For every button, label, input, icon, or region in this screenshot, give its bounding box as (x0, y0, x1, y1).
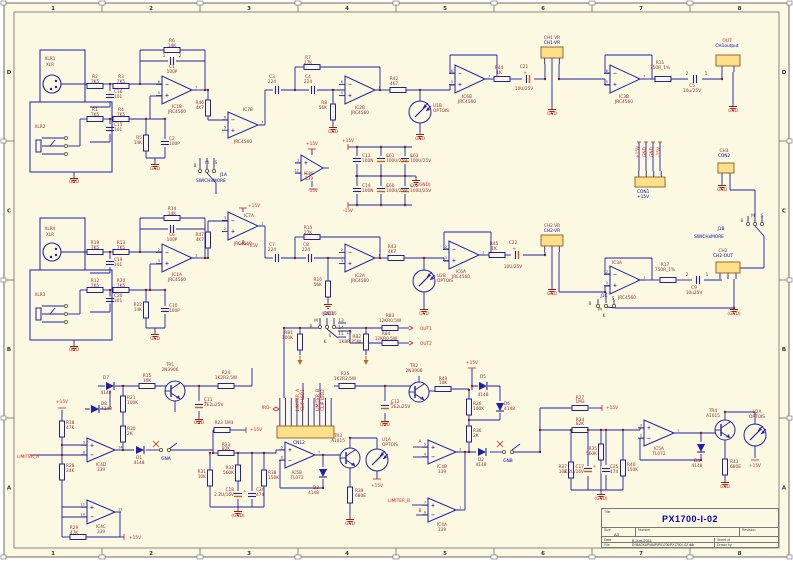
schematic-label: XLR4 (44, 226, 55, 232)
resistor-R38 (261, 470, 267, 486)
mask (376, 157, 386, 164)
frame-col-label: 1 (51, 551, 55, 557)
schematic-label: SWICHxMORE (196, 178, 226, 184)
size-number-revision-row: Size A3 Number Revision (602, 528, 778, 537)
schematic-label: -15V (656, 147, 662, 157)
schematic-label: 100N (362, 188, 373, 194)
switch-contact (502, 450, 505, 453)
pin-number: 3 (606, 281, 608, 285)
schematic-label: M (314, 318, 318, 324)
size-cell: Size A3 (602, 528, 636, 536)
edge-square (99, 555, 105, 559)
pin-number: 1 (195, 254, 197, 258)
pin-number: 1 (459, 506, 461, 510)
junction-dot (263, 452, 265, 454)
schematic-label: CLIP LED2 (320, 389, 326, 411)
schematic-label: 224 (268, 79, 276, 85)
optocoupler-U2B (413, 270, 435, 292)
switch-contact (318, 325, 321, 328)
schematic-label: 24K (66, 468, 74, 474)
schematic-label: A1015 (706, 413, 720, 419)
schematic-label: (GND) (417, 182, 431, 188)
input-sign: − (90, 452, 94, 458)
pin-number: 2 (445, 245, 447, 249)
resistor-R82 (363, 334, 369, 350)
xlr-pin (50, 256, 52, 258)
pin-number: 11 (80, 503, 85, 507)
capacitor-C7 (274, 253, 281, 263)
diode-D1 (135, 445, 145, 455)
schematic-label: OUT1 (420, 326, 432, 332)
pin-number: 1 (482, 251, 484, 255)
junction-dot (145, 118, 147, 120)
junction-dot (237, 452, 239, 454)
schematic-label: JRC4560 (614, 99, 633, 105)
schematic-label: GND (69, 179, 80, 185)
schematic-label: XLR1 (44, 56, 55, 62)
schematic-label: JRC4560 (617, 295, 636, 301)
junction-dot (356, 175, 358, 177)
schematic-label: 750R_1% (650, 65, 670, 71)
schematic-label: JRC4560 (350, 278, 369, 284)
schematic-label: XLR2 (34, 124, 45, 130)
capacitor-C5 (692, 74, 699, 84)
schematic-label: A1015 (331, 438, 345, 444)
schematic-label: 101 (114, 298, 122, 304)
connector-body (541, 235, 563, 246)
pin-number: 12 (294, 169, 299, 173)
junction-dot (600, 429, 602, 431)
pin-number: 13 (118, 508, 123, 512)
schematic-label: CLIP LED1 (300, 389, 306, 411)
resistor-R18 (59, 421, 65, 437)
edge-square (1, 416, 6, 420)
schematic-label: 13 (338, 318, 344, 324)
schematic-label: 339 (97, 529, 105, 535)
schematic-label: C22 (509, 240, 518, 246)
resistor-R25 (339, 383, 355, 389)
schematic-label: JRC4560 (457, 99, 476, 105)
schematic-label: 12 (346, 330, 352, 336)
switch-contact (604, 304, 607, 307)
revision-label: Revision (742, 528, 755, 532)
diode-D5 (478, 381, 488, 391)
pin-number: 3 (341, 259, 343, 263)
connector-body (277, 426, 334, 438)
schematic-label: GND (380, 422, 391, 428)
schematic-label: 14 (338, 325, 344, 331)
pin-number: 3 (297, 158, 299, 162)
resistor-R41 (722, 459, 728, 475)
junction-dot (207, 89, 209, 91)
schematic-label: 7K5 (117, 112, 126, 118)
input-sign: + (231, 229, 235, 235)
junction-dot (700, 459, 702, 461)
cap-polarity: + (593, 464, 596, 469)
input-sign: + (165, 261, 169, 267)
schematic-label: 82K (576, 421, 584, 427)
connector-body (716, 55, 740, 66)
connector-CH1VR (541, 47, 563, 64)
schematic-label: 2K (127, 431, 133, 437)
resistor-R16 (325, 281, 331, 297)
input-sign: + (90, 443, 94, 449)
edge-square (295, 1, 301, 5)
pin-number: 2 (640, 434, 642, 438)
junction-dot (724, 411, 726, 413)
junction-dot (423, 257, 425, 259)
schematic-label: IC7B (243, 107, 253, 113)
frame-row-label: C (7, 209, 11, 215)
schematic-label: 12KR0.5W (379, 318, 402, 324)
schematic-label: +15V (56, 399, 68, 405)
schematic-label: D5 (480, 374, 486, 380)
frame-col-label: 6 (541, 6, 545, 12)
edge-square (491, 1, 497, 5)
resistor-R28 (59, 464, 65, 480)
input-sign: − (458, 71, 462, 77)
jack-terminal (65, 145, 68, 148)
schematic-label: JRC4560 (233, 139, 252, 145)
switch-contact (746, 222, 749, 225)
schematic-page: 1122334455667788DDCCBBAA++++++++++−+657−… (0, 0, 793, 566)
diode-D2 (477, 447, 487, 457)
xlr-connector-XLR1 (43, 75, 61, 93)
pin-number: 2 (341, 248, 343, 252)
file-label: File (604, 543, 610, 547)
junction-dot (122, 449, 124, 451)
schematic-label: 1K2R2.5W (215, 375, 238, 381)
junction-dot (464, 451, 466, 453)
resistor-R30 (120, 426, 126, 442)
switch-contact (612, 304, 615, 307)
schematic-label: GNA (161, 456, 171, 462)
edge-square (787, 139, 792, 143)
schematic-label: B (589, 301, 592, 307)
input-sign: − (452, 247, 456, 253)
resistor-R11 (655, 76, 671, 82)
schematic-label: 100U/25V (386, 188, 407, 194)
resistor-R83 (382, 325, 398, 331)
schematic-label: CH1-VR (544, 40, 560, 46)
schematic-label: -15V (248, 243, 258, 249)
schematic-label: 224 (268, 247, 276, 253)
frame-col-label: 7 (639, 551, 643, 557)
junction-dot (539, 429, 541, 431)
schematic-label: 100P (169, 141, 180, 147)
pin-number: 2 (224, 227, 226, 231)
junction-dot (149, 289, 151, 291)
resistor-R49 (435, 386, 451, 392)
capacitor-C3 (274, 85, 281, 95)
input-sign: + (288, 447, 292, 453)
corner-square (1, 555, 6, 559)
edge-square (1, 278, 6, 282)
xlr-connector-XLR4 (43, 243, 61, 261)
schematic-label: GND (547, 111, 558, 117)
junction-dot (198, 385, 200, 387)
input-sign: − (165, 82, 169, 88)
connector-body (718, 163, 734, 173)
schematic-label: +15V (749, 463, 761, 469)
schematic-label: 14K (168, 43, 176, 49)
title-block: Title PX1700-I-02 Size A3 Number Revisio… (601, 508, 779, 548)
schematic-label: CH2-VR (544, 228, 560, 234)
schematic-label: OPTOIS (437, 278, 453, 284)
resistor-R45 (489, 252, 505, 258)
schematic-label: GND (415, 136, 426, 142)
schematic-label: CN12 (293, 440, 305, 446)
resistor-R34 (572, 427, 588, 433)
schematic-label: R23 1M3 (215, 420, 234, 426)
schematic-label: 4K7 (390, 81, 399, 87)
schematic-label: 150K (268, 475, 279, 481)
schematic-label: 7K5 (91, 283, 100, 289)
junction-dot (419, 89, 421, 91)
schematic-label: 10U/25V (504, 264, 523, 270)
mask (307, 253, 314, 263)
frame-col-label: 8 (738, 551, 742, 557)
schematic-label: B (194, 163, 197, 169)
junction-dot (164, 118, 166, 120)
input-sign: + (431, 503, 435, 509)
switch-contact (760, 222, 763, 225)
schematic-label: 14K (134, 307, 142, 313)
schematic-label: S (612, 296, 615, 302)
edge-square (589, 555, 595, 559)
schematic-label: 27K (304, 230, 312, 236)
schematic-label: GND (345, 521, 356, 527)
corner-square (787, 555, 792, 559)
schematic-label: 101 (114, 127, 122, 133)
edge-square (393, 555, 399, 559)
junction-dot (139, 251, 141, 253)
schematic-label: 14K (168, 211, 176, 217)
schematic-label: 101 (114, 94, 122, 100)
pin-number: 2 (606, 270, 608, 274)
schematic-label: CON2 (718, 153, 731, 159)
schematic-label: 100K (282, 335, 293, 341)
schematic-label: 4K7 (388, 249, 397, 255)
schematic-label: 2K (473, 433, 479, 439)
input-sign: + (348, 261, 352, 267)
input-sign: + (165, 93, 169, 99)
cap-polarity: + (243, 489, 246, 494)
jack-terminal (65, 153, 68, 156)
mask (352, 187, 362, 194)
transistor-TR3 (340, 448, 360, 468)
resistor-R40 (620, 460, 626, 476)
mask (274, 253, 281, 263)
frame-col-label: 5 (443, 6, 447, 12)
edge-square (787, 278, 792, 282)
input-sign: + (458, 82, 462, 88)
switch-contact (332, 325, 335, 328)
frame-row-label: A (782, 486, 787, 492)
optocoupler-U2A (744, 424, 766, 446)
junction-dot (145, 289, 147, 291)
schematic-label: 2 (179, 53, 182, 59)
resistor-R17 (660, 277, 676, 283)
input-sign: + (90, 505, 94, 511)
pin-number: 7 (424, 501, 426, 505)
junction-dot (700, 432, 702, 434)
schematic-label: GND (419, 311, 430, 317)
junction-dot (468, 389, 470, 391)
connector-body (541, 47, 563, 58)
resistor-R46 (205, 100, 211, 116)
junction-dot (380, 175, 382, 177)
junction-dot (322, 487, 324, 489)
junction-dot (294, 257, 296, 259)
resistor-R21 (120, 396, 126, 412)
junction-dot (570, 429, 572, 431)
junction-dot (209, 452, 211, 454)
schematic-label: +15V (129, 535, 141, 541)
schematic-label: 4K7 (196, 237, 205, 243)
schematic-label: 1K (496, 70, 502, 76)
schematic-label: 2E2u25V (204, 402, 223, 408)
schematic-label: 1 (706, 272, 709, 278)
schematic-label: -15V (308, 188, 318, 194)
input-sign: + (613, 82, 617, 88)
schematic-label: 100N (362, 158, 373, 164)
schematic-label: 10u25V (686, 290, 703, 296)
input-sign: + (613, 283, 617, 289)
schematic-label: 15 (331, 311, 337, 317)
resistor-R26 (466, 399, 472, 415)
junction-dot (379, 89, 381, 91)
frame-col-label: 7 (639, 6, 643, 12)
edge-square (687, 1, 693, 5)
pin-number: 3 (445, 256, 447, 260)
frame-col-label: 4 (345, 6, 349, 12)
capacitor-C9 (695, 275, 702, 285)
schematic-label: 4148 (504, 406, 515, 412)
edge-square (687, 555, 693, 559)
resistor-R47 (205, 232, 211, 248)
frame-col-label: 3 (247, 6, 251, 12)
input-sign: − (348, 82, 352, 88)
junction-dot (139, 83, 141, 85)
schematic-label: 474 (610, 469, 618, 475)
schematic-label: 100P (167, 237, 178, 243)
number-label: Number (638, 528, 650, 532)
edge-square (99, 1, 105, 5)
schematic-label: B (310, 324, 313, 330)
resistor-R35 (598, 444, 604, 460)
junction-dot (587, 429, 589, 431)
schematic-label: A (419, 439, 422, 445)
mask (310, 85, 317, 95)
schematic-label: 339 (438, 469, 446, 475)
schematic-label: GND (328, 129, 339, 135)
schematic-label: IC7A (244, 213, 254, 219)
resistor-R8 (330, 104, 336, 120)
pin-number: 14 (118, 446, 123, 450)
schematic-label: GND (150, 336, 161, 342)
junction-dot (404, 175, 406, 177)
corner-square (787, 1, 792, 5)
pin-number: 3 (158, 259, 160, 263)
diode-D3 (318, 468, 328, 478)
schematic-label: 56K (319, 105, 327, 111)
schematic-label: 4148 (308, 490, 319, 496)
schematic-label: M (205, 160, 209, 166)
junction-dot (327, 257, 329, 259)
input-sign: + (231, 128, 235, 134)
mask (583, 467, 593, 474)
mask (376, 187, 386, 194)
jack-terminal (65, 137, 68, 140)
schematic-label: GND (150, 166, 161, 172)
schematic-label: CH1output (715, 43, 738, 49)
pin-number: 1 (261, 222, 263, 226)
schematic-label: 100U/25V (386, 158, 407, 164)
junction-dot (605, 429, 607, 431)
junction-dot (204, 89, 206, 91)
mask (525, 74, 532, 84)
junction-dot (283, 327, 285, 329)
schematic-label: 339 (97, 467, 105, 473)
pin-number: 3 (224, 216, 226, 220)
schematic-label: C21 (520, 64, 529, 70)
diode-D8 (90, 404, 100, 414)
junction-dot (349, 437, 351, 439)
schematic-label: 339 (438, 527, 446, 533)
schematic-label: S (215, 160, 218, 166)
schematic-label: 14K (134, 140, 142, 146)
date-label: Date (604, 538, 611, 542)
schematic-label: 10K (198, 474, 206, 480)
schematic-label: -15V (343, 208, 353, 214)
mask (380, 404, 390, 411)
resistor-R36 (466, 426, 472, 442)
input-sign: − (165, 250, 169, 256)
title-row: Title PX1700-I-02 (602, 509, 778, 528)
capacitor-C13 (352, 157, 362, 164)
schematic-label: 7K5 (117, 245, 126, 251)
pin-number: 5 (158, 91, 160, 95)
junction-dot (207, 257, 209, 259)
schematic-label: GND (728, 108, 739, 114)
schematic-label: 10K (439, 380, 447, 386)
input-sign: − (613, 272, 617, 278)
schematic-label: 1K2R2.5W (334, 376, 357, 382)
connector-CH2VR (541, 235, 563, 252)
frame-row-label: B (782, 347, 786, 353)
schematic-label: GND (649, 146, 655, 157)
frame-col-label: 2 (149, 6, 153, 12)
schematic-label: 10K (143, 378, 151, 384)
schematic-label: K (324, 339, 327, 345)
junction-dot (294, 89, 296, 91)
transistor-TR1 (165, 381, 185, 401)
schematic-label: 10U/25V (515, 86, 534, 92)
schematic-label: J1C (599, 293, 607, 299)
schematic-label: +15V (342, 138, 354, 144)
switch-contact (212, 169, 215, 172)
schematic-label: +15V (637, 194, 649, 200)
schematic-label: TL072 (651, 451, 665, 457)
pin-number: 5 (606, 80, 608, 84)
edge-square (197, 555, 203, 559)
mask (692, 74, 699, 84)
pin-number: 7 (488, 75, 490, 79)
frame-col-label: 6 (541, 551, 545, 557)
edge-square (1, 139, 6, 143)
resistor-R5 (143, 135, 149, 151)
